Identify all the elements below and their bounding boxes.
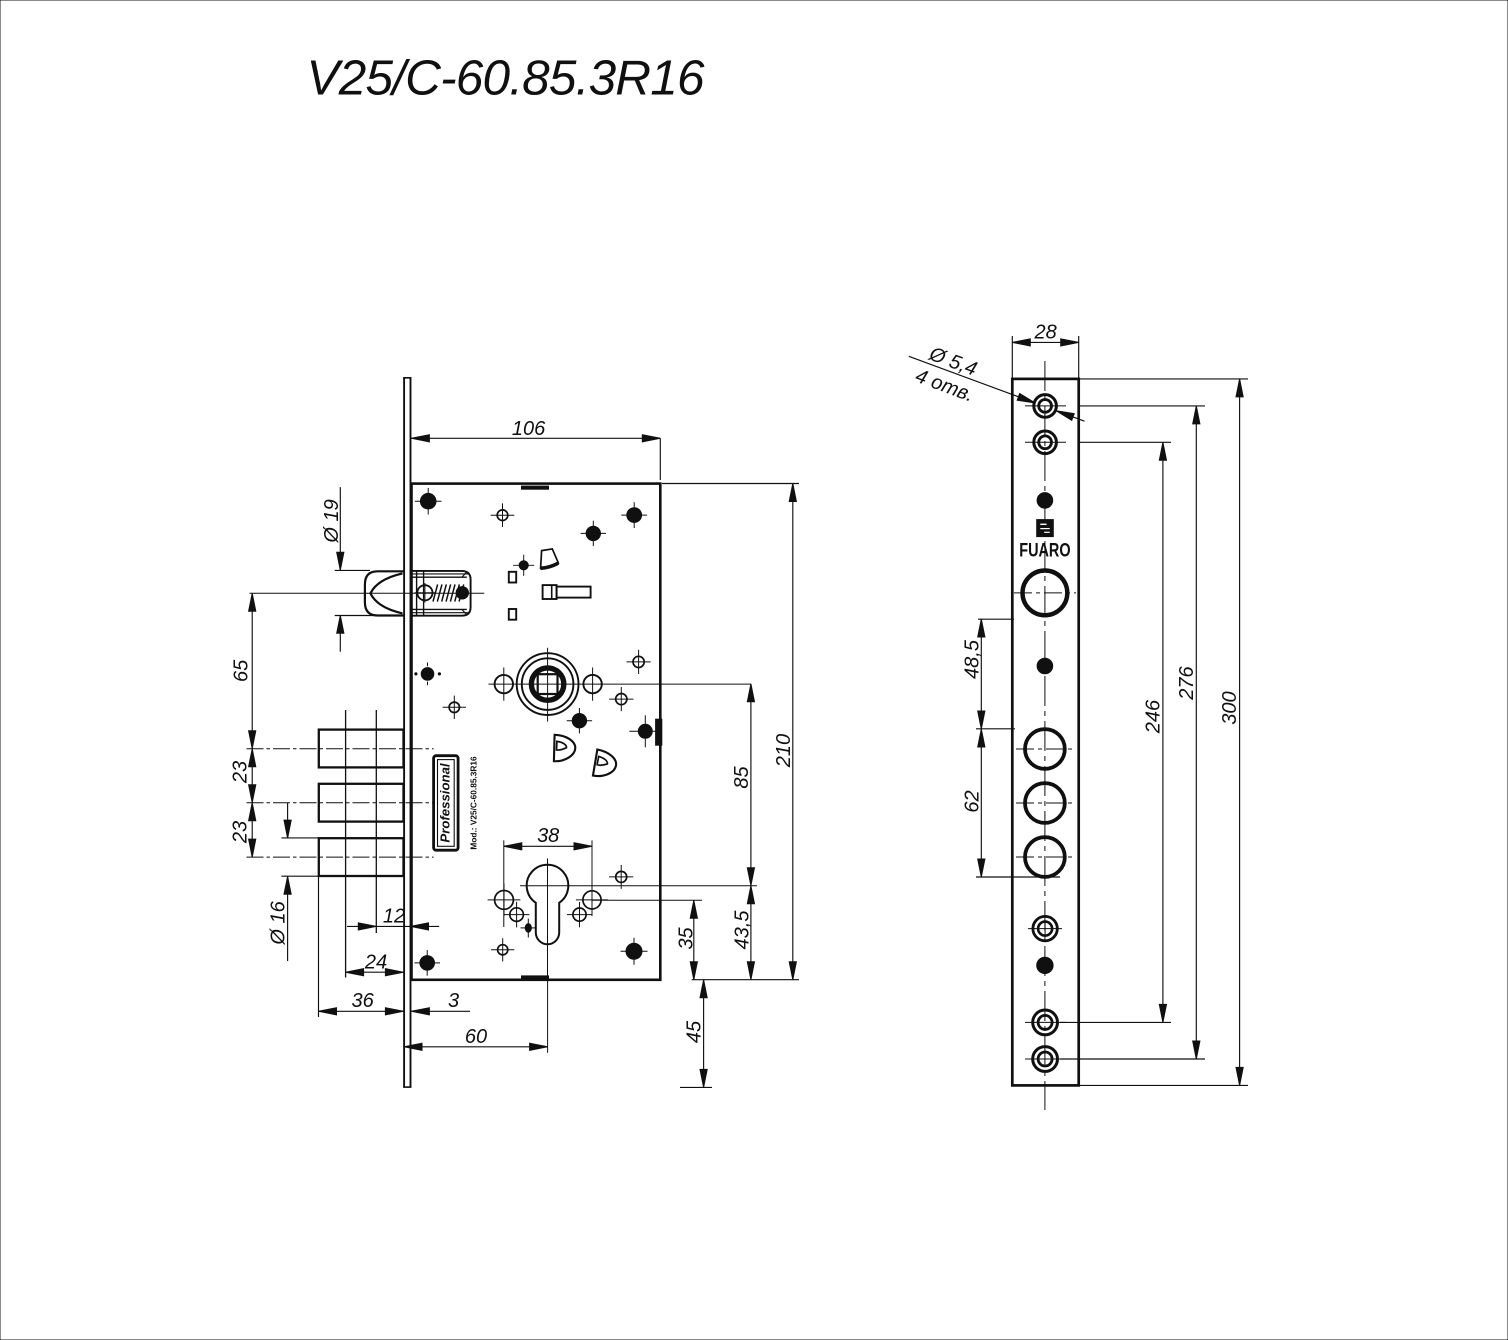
svg-text:Professional: Professional [438, 763, 453, 842]
svg-text:65: 65 [230, 659, 252, 682]
svg-text:28: 28 [1033, 322, 1056, 344]
svg-text:12: 12 [383, 906, 405, 928]
svg-text:45: 45 [684, 1020, 706, 1043]
svg-text:106: 106 [512, 418, 546, 440]
svg-text:23: 23 [230, 821, 252, 844]
svg-text:Mod.: V25/C-60.85.3R16: Mod.: V25/C-60.85.3R16 [469, 756, 479, 850]
svg-text:43,5: 43,5 [732, 910, 754, 950]
svg-text:38: 38 [537, 825, 559, 847]
svg-text:35: 35 [675, 927, 697, 950]
svg-text:300: 300 [1219, 691, 1241, 724]
svg-text:85: 85 [731, 766, 753, 789]
svg-text:FUARO: FUARO [1019, 540, 1070, 561]
svg-text:276: 276 [1176, 665, 1198, 700]
svg-text:60: 60 [465, 1026, 487, 1048]
svg-text:62: 62 [962, 790, 984, 812]
svg-text:36: 36 [351, 990, 374, 1012]
svg-text:Ø 16: Ø 16 [268, 900, 290, 945]
svg-text:3: 3 [448, 990, 459, 1012]
svg-text:24: 24 [364, 952, 387, 974]
svg-text:48,5: 48,5 [962, 639, 984, 679]
svg-text:246: 246 [1143, 699, 1165, 734]
svg-text:23: 23 [230, 761, 252, 784]
svg-text:V25/C-60.85.3R16: V25/C-60.85.3R16 [307, 51, 705, 106]
svg-text:210: 210 [773, 734, 795, 768]
svg-text:Ø 19: Ø 19 [321, 499, 343, 543]
